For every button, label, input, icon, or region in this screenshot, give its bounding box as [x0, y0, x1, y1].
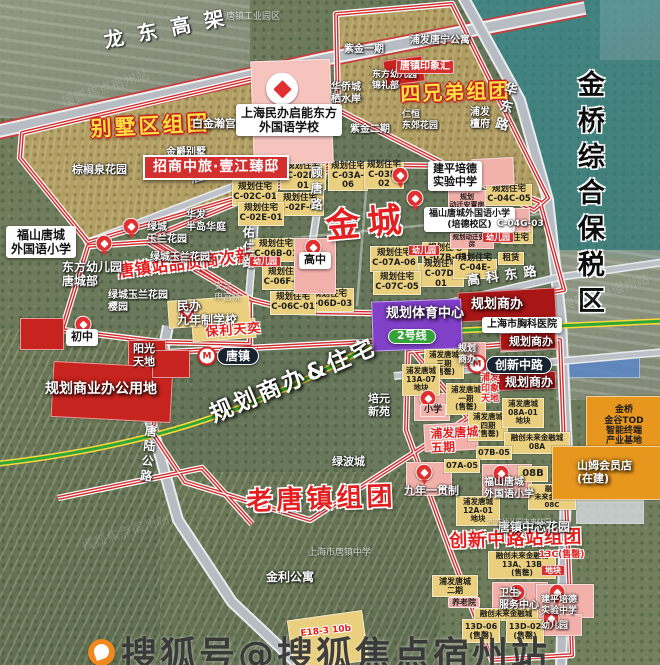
- tag-kinder-2: 幼儿园: [408, 245, 440, 256]
- poi-yangguang-tiandi: 阳光 天地: [133, 343, 155, 369]
- pin-jiunian: [416, 464, 433, 481]
- watermark-text: 搜狐号@搜狐焦点宿州站: [121, 626, 550, 665]
- estate-lvcheng-yulan-1: 绿城 玉兰花园: [147, 222, 187, 246]
- poi-jianping-peide-north: 建平培德 实验中学: [428, 161, 482, 191]
- badge-line2: 2号线: [388, 329, 436, 344]
- parcel-c07c05: 规划住宅 C-07C-05: [373, 271, 421, 295]
- planning-map-canvas: 规划住宅 C-02C-01规划住宅 C-02D-01规划住宅 C-03A-06规…: [0, 0, 660, 665]
- estate-huafa-bandao: 华发 半岛华庭: [186, 210, 226, 234]
- estate-lvcheng-yulan-2: 绿城玉兰花园: [150, 252, 210, 264]
- zone-laotangzhen: 老唐镇组团: [246, 482, 397, 518]
- sohu-fox-icon: [88, 639, 115, 665]
- label-c04g03: C-04G-03: [497, 219, 544, 230]
- label-guihua-shangban-2: 规划商办: [509, 336, 553, 349]
- parcel-c02e01: 规划住宅 C-02E-01: [238, 202, 284, 226]
- estate-lvcheng-yulan-ying: 绿城玉兰花园 樱园: [108, 290, 168, 314]
- parcel-07a05-label: 07A-05: [446, 461, 478, 470]
- pin-fushan-west-1: [96, 235, 113, 252]
- parcel-07b05-label: 07B-05: [478, 448, 510, 457]
- poi-tangzhen-yinxianghui: 唐镇印象汇: [396, 60, 454, 74]
- parcel-c03a06: 规划住宅 C-03A-06: [328, 162, 368, 191]
- parcel-zulin-label: 租赁: [502, 254, 519, 264]
- estate-peiyuan-xinyuan: 培元 新苑: [368, 393, 390, 419]
- pin-peide-2: [407, 190, 424, 207]
- watermark: 搜狐号@搜狐焦点宿州站: [88, 626, 550, 665]
- parcel-pufa-08a01: 浦发唐城 08A-01 地块: [502, 398, 544, 428]
- parcel-tod-label: 金桥 金谷TOD 智能终端 产业基地: [604, 405, 643, 446]
- parcel-c07c05-label: 规划住宅 C-07C-05: [375, 273, 419, 293]
- estate-jinli-apartment: 金利公寓: [266, 570, 314, 584]
- tag-dikuai: 地块: [541, 565, 565, 576]
- pin-fushan-west-2: [123, 218, 140, 235]
- tag-yanglaoyuan: 养老院: [448, 597, 480, 608]
- label-guihua-shangban-3: 规划商办: [505, 375, 553, 389]
- parcel-pufa-08a01-label: 浦发唐城 08A-01 地块: [508, 400, 538, 426]
- parcel-pufa-2: 浦发唐城 二期: [432, 575, 478, 597]
- poi-jianping-peide-south: 建平培德 实验中学: [541, 595, 577, 616]
- tag-kinder-1: 幼儿园: [249, 256, 281, 267]
- estate-weilaizhan-kinder: 东方幼儿园未来站园: [488, 518, 551, 526]
- poi-sams-club: 山姆会员店 (在建): [577, 460, 632, 486]
- pin-qineng: [266, 73, 298, 105]
- parcel-c06c01: 规划住宅 C-06C-01: [270, 291, 316, 315]
- pin-peide-1: [392, 167, 409, 184]
- parcel-zulin: 租赁: [498, 252, 524, 265]
- estate-pufa-tangning: 浦发唐宁公寓: [410, 35, 470, 47]
- poi-weisheng-center: 卫生 服务中心: [499, 588, 539, 612]
- parcel-07a05: 07A-05: [444, 459, 480, 473]
- parcel-pufa-1-label: 浦发唐城 一期 (售罄): [451, 386, 481, 412]
- label-jinqiao-baoshuiqu: 金桥综合保税区: [572, 70, 604, 322]
- parcel-c04c05-label: 规划住宅 C-04C-05: [487, 185, 531, 205]
- estate-tangzhen-industrial: 唐镇工业园区: [226, 12, 280, 23]
- tag-xiaoxue: 小学: [420, 404, 446, 417]
- station-chuangxin-zhonglu: 创新中路: [486, 356, 552, 374]
- label-guihua-shangban-1: 规划商办: [471, 297, 523, 312]
- estate-baijinhangong: 白金瀚宫: [192, 118, 236, 131]
- parcel-pufa-13a07-label: 浦发唐城 13A-07 地块: [406, 367, 436, 393]
- estate-zijin-1: 紫金一期: [344, 44, 384, 56]
- station-tangzhen: 唐镇: [217, 347, 259, 365]
- label-13c-sold: 13C(售罄): [539, 550, 584, 561]
- poi-dongfang-kinder-tangcheng: 东方幼儿园 唐城部: [62, 260, 122, 288]
- estate-zonglvquan: 棕榈泉花园: [72, 164, 127, 177]
- pin-metro-tangzhen: M: [198, 347, 217, 366]
- estate-huaqiaocheng: 华侨城 栖水岸: [331, 82, 361, 106]
- estate-renheng-dongjiao: 仁恒 东郊花园: [402, 110, 438, 131]
- estate-pufa-tanfu: 浦发 檀府: [470, 107, 490, 131]
- parcel-c02e01-label: 规划住宅 C-02E-01: [240, 204, 283, 224]
- parcel-c06c01-label: 规划住宅 C-06C-01: [271, 293, 315, 313]
- poi-fushan-school-west: 福山唐城 外国语小学: [6, 226, 76, 258]
- poi-pufa-yinxiang-tiandi: 浦发 印象 天地: [481, 373, 499, 405]
- parcel-pufa-13a07: 浦发唐城 13A-07 地块: [402, 364, 440, 396]
- parcel-c03a06-label: 规划住宅 C-03A-06: [329, 162, 367, 191]
- parcel-shangye-2: [152, 350, 190, 378]
- parcel-pufa-2-label: 浦发唐城 二期: [439, 577, 471, 595]
- label-guihua-shangban-4: 规划 商办: [458, 344, 476, 365]
- poi-fushan-school-south: 福山唐城 外国语小学: [484, 477, 534, 501]
- estate-lvbocheng: 绿波城: [332, 456, 365, 469]
- poi-chuzhong: 初中: [66, 329, 98, 346]
- poi-jiunian-yiguanzhi: 九年一贯制: [404, 485, 459, 498]
- poi-xiongke-hospital: 上海市胸科医院: [482, 317, 562, 333]
- parcel-c02c01-label: 规划住宅 C-02C-01: [233, 183, 277, 203]
- zone-jincheng: 金城: [324, 200, 411, 247]
- road-gutang: 顾唐路: [309, 166, 323, 214]
- label-tiyu-center: 规划体育中心: [386, 306, 464, 321]
- parcel-07b05: 07B-05: [476, 446, 512, 460]
- parcel-c04c05: 规划住宅 C-04C-05: [486, 184, 532, 206]
- estate-tangzhen-middle: 上海市唐镇中学: [308, 548, 371, 559]
- estate-zijin-2: 紫金二期: [350, 124, 390, 136]
- parcel-chuzhong: [20, 318, 64, 350]
- poi-zhaoshang-banner: 招商中旅·壹江臻邸: [143, 155, 289, 180]
- poi-pufa-tangcheng-5: 浦发唐城 五期: [430, 424, 479, 455]
- tag-kinder-3: 幼儿园: [482, 232, 514, 243]
- zone-shangye-bangong: 规划商业办公用地: [45, 381, 157, 398]
- poi-gaozhong: 高中: [299, 252, 331, 269]
- poi-qineng-school: 上海民办启能东方 外国语学校: [236, 104, 342, 136]
